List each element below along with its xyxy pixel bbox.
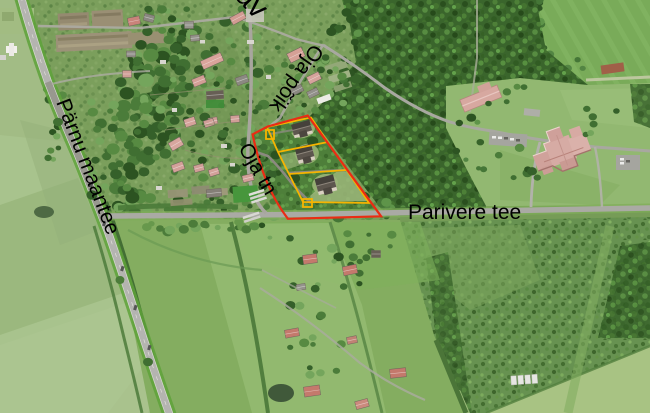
svg-text:Parivere tee: Parivere tee	[408, 201, 521, 224]
